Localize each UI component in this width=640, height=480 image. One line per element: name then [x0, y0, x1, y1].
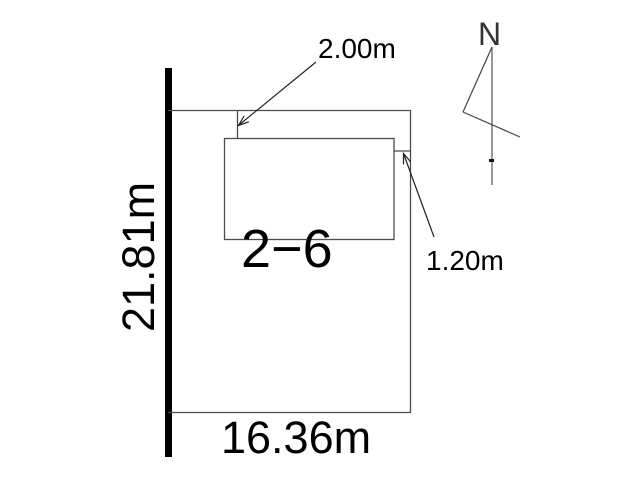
parcel-number-label: 2−6	[241, 222, 333, 276]
top-setback-arrow-line	[239, 62, 316, 125]
north-needle-left-edge	[463, 47, 492, 112]
right-setback-arrow	[404, 154, 435, 238]
top-setback-label: 2.00m	[318, 35, 396, 63]
left-dimension-label: 21.81m	[116, 182, 161, 332]
north-letter: N	[478, 16, 501, 52]
parcel-diagram: N 2.00m 1.20m 21.81m 16.36m 2−6	[0, 0, 640, 480]
right-setback-arrow-line	[404, 154, 435, 238]
bottom-dimension-label: 16.36m	[221, 415, 371, 460]
right-setback-label: 1.20m	[426, 247, 504, 275]
top-setback-arrow	[239, 62, 317, 126]
north-arrow-icon: N	[463, 16, 520, 185]
